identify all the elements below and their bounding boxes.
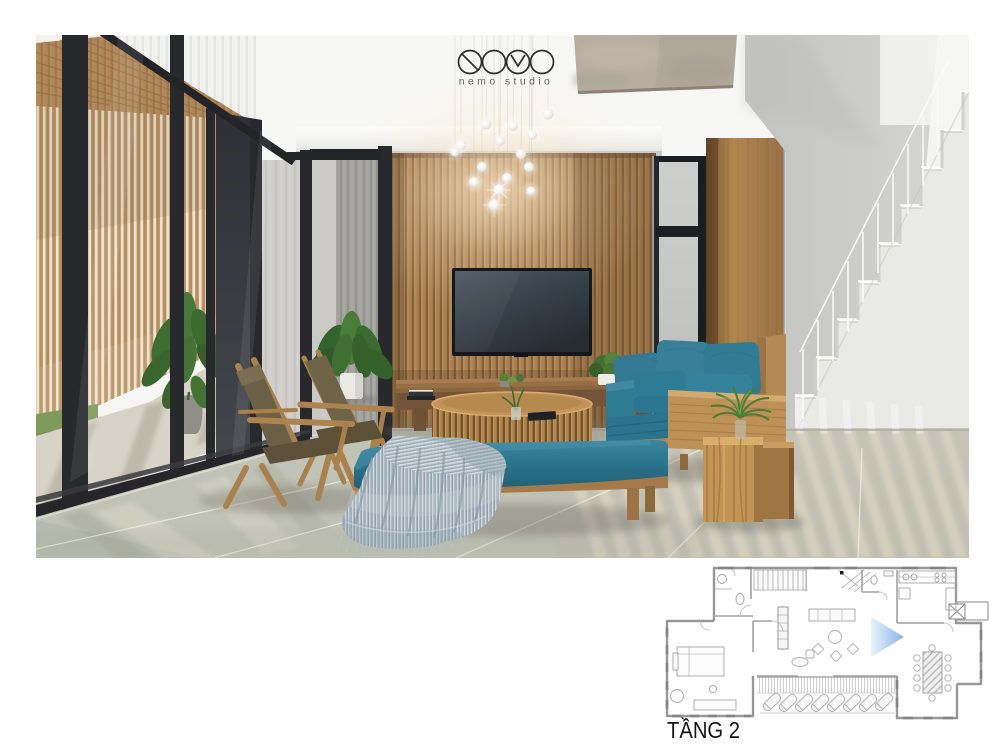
svg-text:TẦNG 2: TẦNG 2 (667, 716, 740, 743)
svg-text:nemo studio: nemo studio (459, 76, 554, 88)
